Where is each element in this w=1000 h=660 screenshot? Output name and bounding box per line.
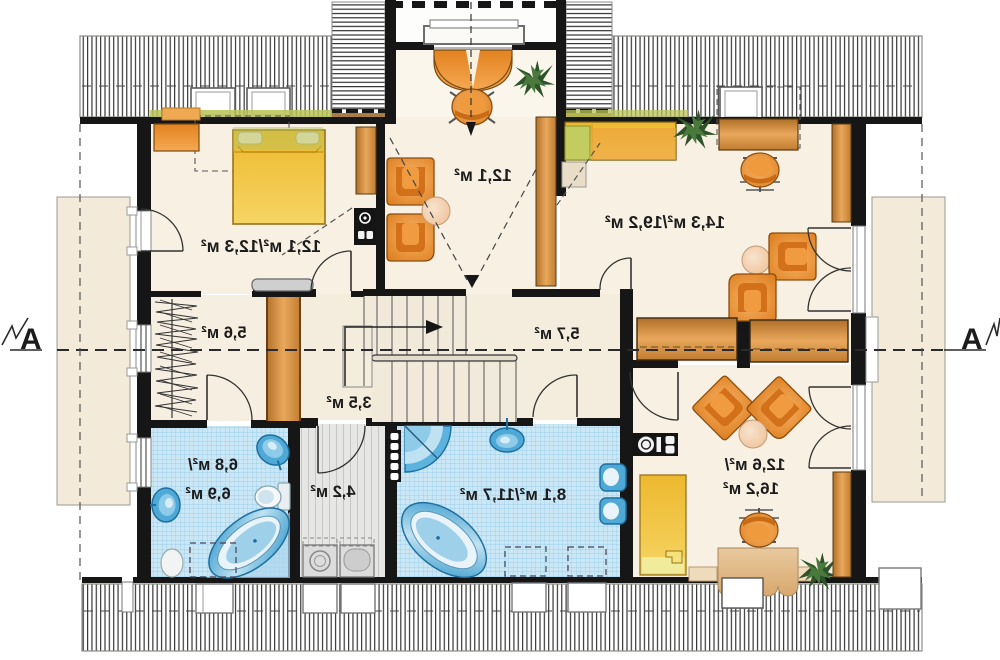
svg-text:5,7 м²: 5,7 м² — [534, 325, 580, 343]
svg-text:16,2 м²: 16,2 м² — [723, 479, 779, 498]
svg-text:5,6 м²: 5,6 м² — [201, 324, 247, 342]
svg-text:14,3 м²/19,2 м²: 14,3 м²/19,2 м² — [605, 212, 725, 232]
svg-text:3,5 м²: 3,5 м² — [326, 394, 372, 412]
svg-text:8,1 м²/11,7 м²: 8,1 м²/11,7 м² — [459, 485, 566, 504]
svg-text:A: A — [20, 323, 42, 356]
svg-text:4,2 м²: 4,2 м² — [310, 483, 356, 501]
svg-text:12,1 м²/12,3 м²: 12,1 м²/12,3 м² — [201, 236, 321, 256]
svg-text:12,1 м²: 12,1 м² — [454, 165, 512, 185]
svg-text:A: A — [961, 323, 983, 356]
svg-text:12,6 м²/: 12,6 м²/ — [724, 455, 785, 474]
svg-text:6,8 м²/: 6,8 м²/ — [188, 456, 238, 474]
svg-text:6,9 м²: 6,9 м² — [185, 485, 231, 503]
